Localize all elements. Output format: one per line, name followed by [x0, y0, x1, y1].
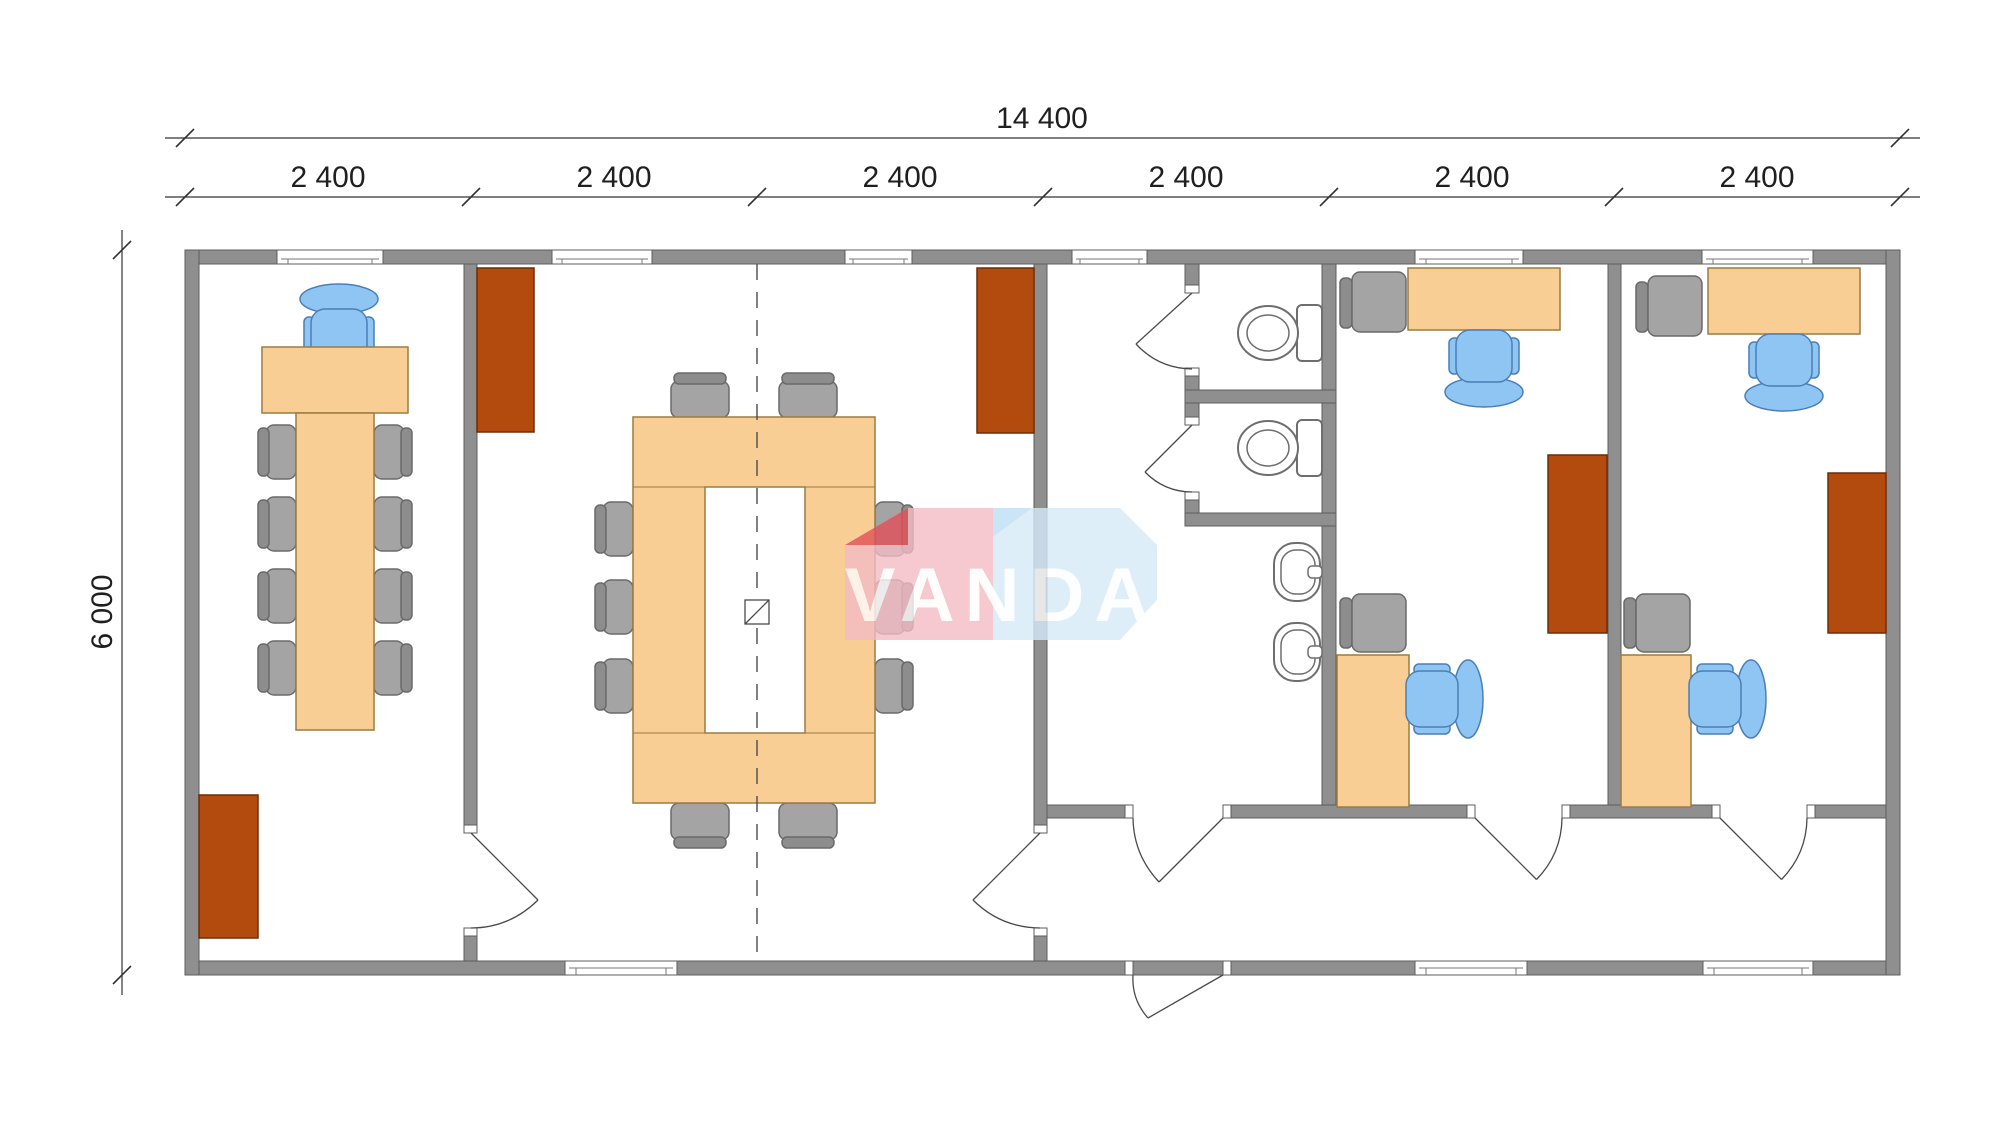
conference-chair — [779, 373, 837, 418]
door-jamb — [1185, 492, 1199, 500]
dimension-label-module-4: 2 400 — [1148, 161, 1223, 194]
door-jamb — [1467, 805, 1475, 818]
wash-basin-1 — [1274, 543, 1322, 601]
door-wc-stall-2 — [1145, 425, 1192, 492]
conference-chair — [779, 803, 837, 848]
wash-basin-2 — [1274, 623, 1322, 681]
head-desk — [262, 347, 408, 413]
task-chair — [1406, 660, 1483, 738]
meeting-chair — [258, 425, 296, 479]
desk — [1708, 268, 1860, 334]
visitor-chair — [1352, 594, 1406, 652]
sanitary-block — [1238, 305, 1322, 681]
wall-hall-office1 — [1322, 264, 1336, 818]
floor-plan-page: 14 400 2 400 2 400 2 400 2 400 2 400 2 4… — [0, 0, 2000, 1147]
wall-wc-bottom — [1185, 513, 1336, 526]
wall-wc-divider — [1185, 390, 1336, 403]
window-top-hall — [1072, 250, 1147, 264]
visitor-chair-back — [1340, 278, 1352, 328]
door-wc-stall-1 — [1136, 293, 1192, 369]
desk-2 — [1337, 655, 1409, 807]
meeting-room — [199, 284, 412, 938]
conference-chair — [595, 580, 633, 634]
toilet-1 — [1238, 305, 1322, 361]
conference-chair — [875, 659, 913, 713]
floor-plan-drawing: 14 400 2 400 2 400 2 400 2 400 2 400 2 4… — [0, 0, 2000, 1147]
dimension-label-module-6: 2 400 — [1719, 161, 1794, 194]
door-jamb — [1223, 805, 1231, 818]
window-bottom-corridor-2 — [1703, 961, 1813, 975]
task-chair — [1445, 330, 1523, 407]
meeting-chair — [374, 425, 412, 479]
door-jamb — [1712, 805, 1720, 818]
visitor-chair-back — [1636, 282, 1648, 332]
meeting-chair — [374, 497, 412, 551]
visitor-chair — [1648, 276, 1702, 336]
dimension-label-module-1: 2 400 — [290, 161, 365, 194]
door-jamb — [1185, 417, 1199, 425]
door-jamb — [1223, 961, 1231, 975]
window-bottom-conference — [565, 961, 677, 975]
conference-chair — [595, 659, 633, 713]
office-1 — [1337, 268, 1607, 807]
visitor-chair-back — [1624, 598, 1636, 648]
window-top-conference-left — [552, 250, 652, 264]
desk-2 — [1621, 655, 1691, 807]
module-joint — [745, 264, 769, 961]
visitor-chair — [1352, 272, 1406, 332]
door-office2 — [1720, 818, 1807, 880]
wall-exterior-top — [185, 250, 1900, 264]
long-table — [296, 413, 374, 730]
watermark: VANDA — [845, 508, 1160, 640]
wall-meeting-conference-upper — [464, 264, 477, 825]
dimension-label-total-width: 14 400 — [996, 102, 1088, 135]
door-conference-to-hall — [973, 833, 1040, 928]
door-jamb — [464, 825, 477, 833]
cabinet — [977, 268, 1034, 433]
dimension-label-height: 6 000 — [86, 574, 119, 649]
door-jamb — [1125, 961, 1133, 975]
door-jamb — [1125, 805, 1133, 818]
wall-corridor-segment-4 — [1815, 805, 1886, 818]
door-jamb — [1562, 805, 1570, 818]
visitor-chair-back — [1340, 598, 1352, 648]
wall-office1-office2 — [1608, 264, 1621, 818]
task-chair — [1745, 334, 1823, 411]
window-top-meeting — [277, 250, 383, 264]
meeting-chair — [258, 641, 296, 695]
door-jamb — [1034, 825, 1047, 833]
door-jamb — [1807, 805, 1815, 818]
cabinet — [199, 795, 258, 938]
meeting-chair — [258, 497, 296, 551]
wall-exterior-bottom — [185, 961, 1900, 975]
desk — [1408, 268, 1560, 330]
cabinet — [477, 268, 534, 432]
conference-chair — [671, 803, 729, 848]
window-top-office2 — [1702, 250, 1813, 264]
wall-exterior-left — [185, 250, 199, 975]
door-jamb — [464, 928, 477, 936]
conference-chair — [595, 502, 633, 556]
cabinet — [1548, 455, 1607, 633]
door-jamb — [1185, 285, 1199, 293]
task-chair — [1689, 660, 1766, 738]
dimension-label-module-2: 2 400 — [576, 161, 651, 194]
dimension-label-module-3: 2 400 — [862, 161, 937, 194]
cabinet — [1828, 473, 1886, 633]
wall-conference-hall-lower — [1034, 936, 1047, 961]
conference-chair — [671, 373, 729, 418]
meeting-chair — [374, 641, 412, 695]
meeting-chair — [258, 569, 296, 623]
door-hall-inner — [1133, 818, 1223, 882]
visitor-chair — [1636, 594, 1690, 652]
door-meeting-to-conference — [471, 833, 538, 928]
toilet-2 — [1238, 420, 1322, 476]
window-top-office1 — [1415, 250, 1523, 264]
door-entrance-exterior — [1133, 975, 1223, 1018]
wall-corridor-segment-1 — [1047, 805, 1125, 818]
wall-meeting-conference-lower — [464, 936, 477, 961]
window-bottom-corridor-1 — [1415, 961, 1527, 975]
wall-exterior-right — [1886, 250, 1900, 975]
door-office1 — [1475, 818, 1562, 880]
window-top-conference-right — [845, 250, 912, 264]
watermark-text: VANDA — [845, 553, 1160, 638]
office-2 — [1621, 268, 1886, 807]
door-jamb — [1034, 928, 1047, 936]
dimension-modules — [165, 188, 1920, 206]
dimension-label-module-5: 2 400 — [1434, 161, 1509, 194]
meeting-chair — [374, 569, 412, 623]
wall-wc-stub-top — [1185, 264, 1199, 285]
